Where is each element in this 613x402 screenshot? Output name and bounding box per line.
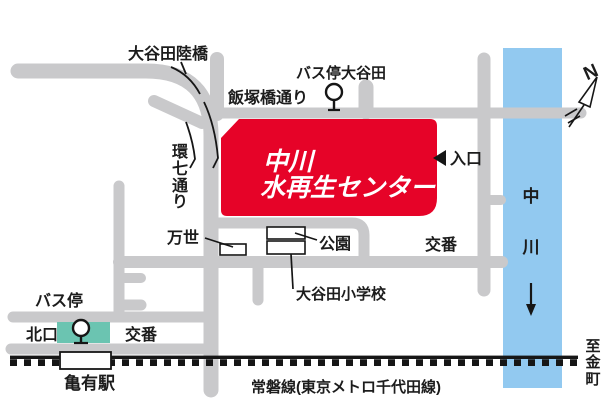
- label-mansei: 万世: [166, 229, 199, 247]
- label-kannana-dori: 環 七 通 り: [172, 143, 189, 211]
- label-oyata-rikkyo: 大谷田陸橋: [128, 44, 209, 63]
- access-map: 中川 水再生センター N: [0, 0, 613, 402]
- label-bus-stop-oyata: バス停大谷田: [296, 64, 386, 82]
- facility-name-line1: 中川: [263, 148, 316, 176]
- label-police-lower: 交番: [125, 325, 158, 344]
- label-kameari-station: 亀有駅: [64, 373, 116, 393]
- north-arrow-icon: [565, 77, 597, 127]
- park-box: [267, 227, 305, 239]
- mansei-building-box: [220, 244, 246, 255]
- label-bus-stop: バス停: [35, 291, 83, 310]
- north-label: N: [580, 60, 601, 85]
- bus-stop-icon-oyata: [326, 84, 342, 110]
- kannana-char-1: 環: [172, 143, 189, 161]
- label-north-exit: 北口: [26, 326, 58, 344]
- kannana-char-2: 七: [172, 160, 188, 178]
- label-elementary-school: 大谷田小学校: [296, 285, 387, 303]
- river-char-1: 中: [523, 186, 540, 206]
- kanamachi-char-1: 至: [585, 338, 600, 355]
- road-diagonal-stub: [154, 101, 202, 123]
- label-iizuka-dori: 飯塚橋通り: [227, 88, 308, 107]
- river-char-2: 川: [522, 238, 540, 257]
- naka-river: [503, 48, 562, 388]
- label-to-kanamachi: 至 金 町: [584, 338, 601, 388]
- label-entrance: 入口: [450, 150, 482, 168]
- kannana-char-4: り: [172, 193, 188, 211]
- school-box: [267, 241, 305, 254]
- label-joban-line: 常磐線(東京メトロ千代田線): [251, 378, 441, 396]
- facility-name-line2: 水再生センター: [260, 174, 436, 202]
- label-police-upper: 交番: [425, 235, 458, 254]
- kameari-station-box: [60, 352, 111, 369]
- kanamachi-char-3: 町: [585, 371, 600, 388]
- kannana-char-3: 通: [172, 177, 188, 195]
- label-park: 公園: [319, 235, 351, 253]
- kanamachi-char-2: 金: [584, 353, 601, 371]
